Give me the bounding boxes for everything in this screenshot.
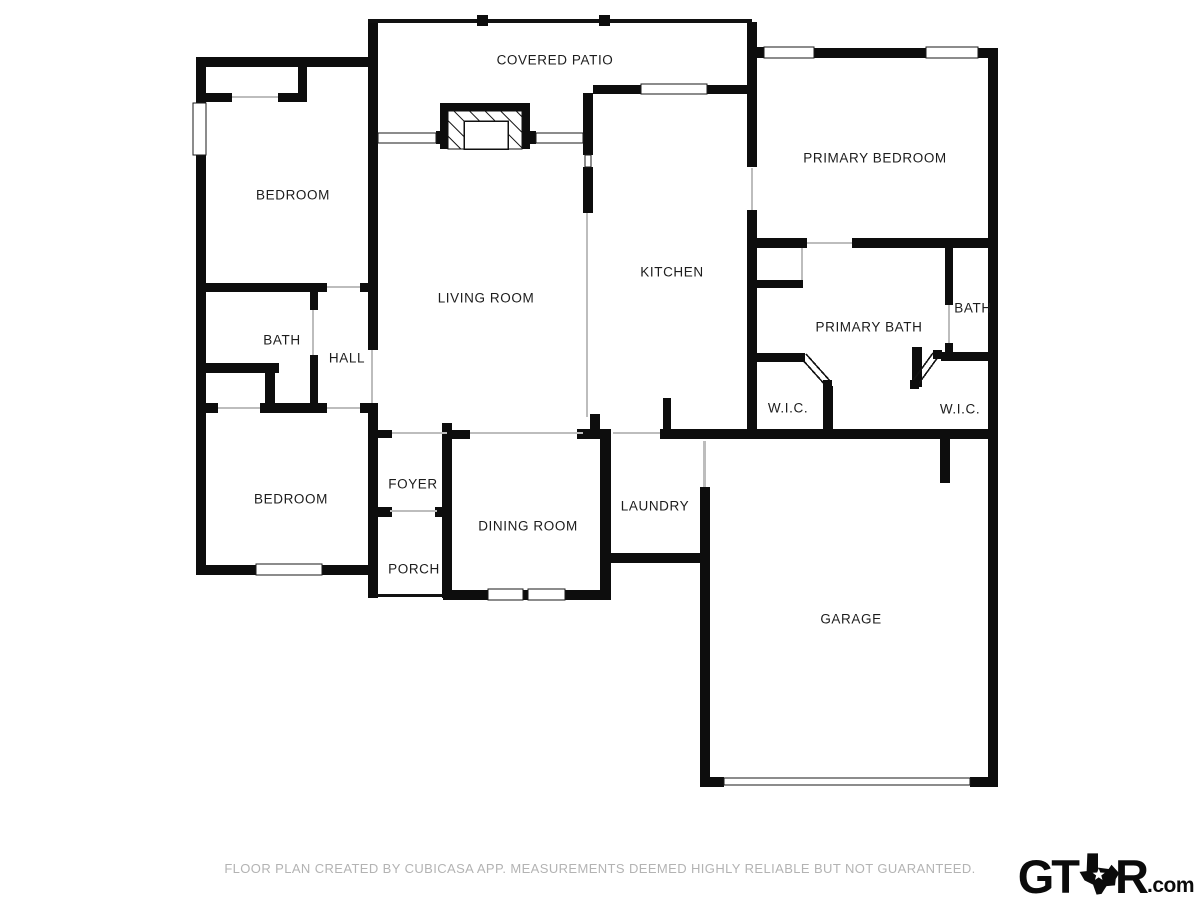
floor-plan-svg (0, 0, 1200, 900)
logo-text-gt: GT (1018, 858, 1077, 896)
garage-door (724, 778, 970, 785)
floor-plan: COVERED PATIO BEDROOM LIVING ROOM KITCHE… (0, 0, 1200, 900)
walls (196, 22, 998, 787)
logo-tld: .com (1147, 875, 1194, 896)
door-openings (218, 96, 950, 512)
logo-text-r: R (1115, 858, 1146, 896)
gtar-logo: GT R .com (1018, 852, 1194, 896)
texas-star-icon (1076, 852, 1120, 896)
fireplace (440, 103, 530, 149)
